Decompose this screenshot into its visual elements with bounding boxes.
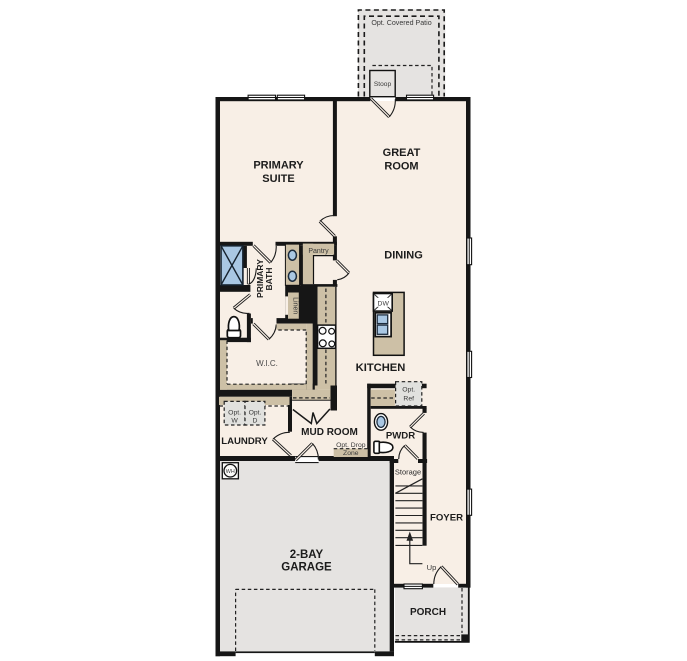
svg-text:LAUNDRY: LAUNDRY xyxy=(221,436,268,447)
svg-text:W: W xyxy=(231,418,238,425)
svg-text:SUITE: SUITE xyxy=(262,173,294,185)
svg-text:PRIMARY: PRIMARY xyxy=(253,160,304,172)
svg-text:Up: Up xyxy=(427,563,437,572)
svg-text:GREAT: GREAT xyxy=(383,147,421,159)
svg-text:MUD ROOM: MUD ROOM xyxy=(301,427,358,438)
svg-text:Opt. Covered Patio: Opt. Covered Patio xyxy=(371,19,431,27)
svg-text:D: D xyxy=(253,418,258,425)
svg-text:BATH: BATH xyxy=(264,268,274,291)
svg-text:FOYER: FOYER xyxy=(430,513,463,524)
svg-text:KITCHEN: KITCHEN xyxy=(356,362,406,374)
svg-text:DINING: DINING xyxy=(384,250,423,262)
svg-text:PWDR: PWDR xyxy=(386,431,415,442)
svg-text:Ref: Ref xyxy=(403,396,414,403)
svg-text:DW: DW xyxy=(378,300,390,307)
svg-text:Linen: Linen xyxy=(292,297,299,314)
svg-text:W.I.C.: W.I.C. xyxy=(256,359,278,368)
svg-text:Zone: Zone xyxy=(343,450,359,457)
svg-text:GARAGE: GARAGE xyxy=(281,562,332,574)
svg-text:Opt.: Opt. xyxy=(249,410,262,417)
svg-text:PORCH: PORCH xyxy=(410,607,446,618)
svg-text:Opt. Drop: Opt. Drop xyxy=(336,442,366,449)
svg-text:Stoop: Stoop xyxy=(374,81,392,88)
svg-text:2-BAY: 2-BAY xyxy=(290,549,324,561)
svg-text:Opt.: Opt. xyxy=(228,410,241,417)
svg-text:Pantry: Pantry xyxy=(308,248,329,255)
svg-text:WH: WH xyxy=(226,469,235,475)
svg-text:Storage: Storage xyxy=(395,468,421,477)
svg-text:Opt.: Opt. xyxy=(402,387,415,394)
svg-text:ROOM: ROOM xyxy=(384,161,418,173)
